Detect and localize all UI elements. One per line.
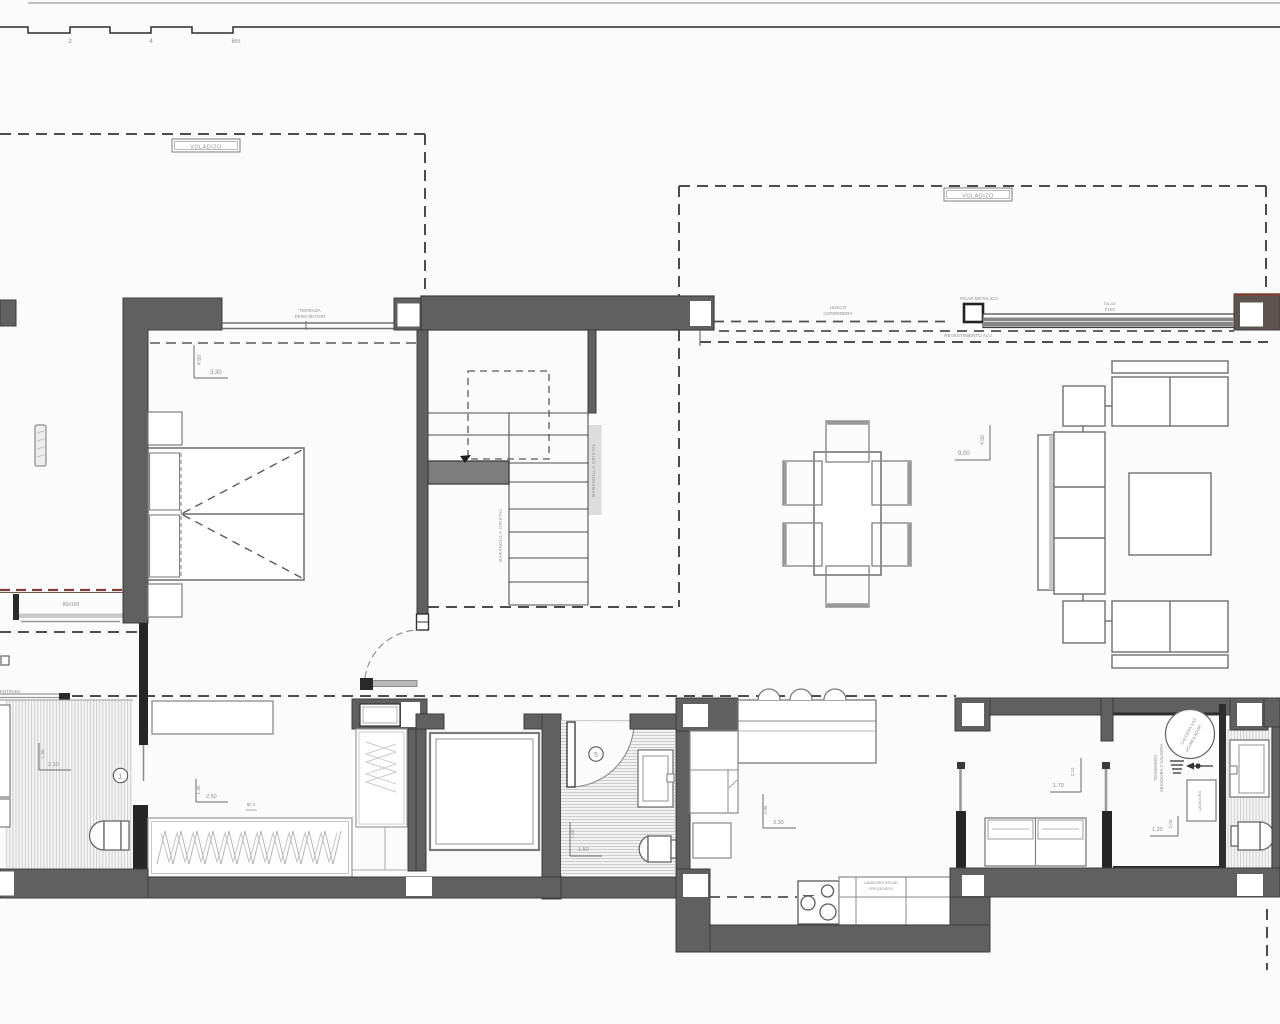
- svg-text:2.50: 2.50: [206, 794, 217, 800]
- svg-text:FIJO: FIJO: [1105, 307, 1115, 312]
- svg-text:2: 2: [68, 38, 72, 45]
- svg-text:FREGADERO: FREGADERO: [869, 887, 893, 891]
- svg-text:1.70: 1.70: [1053, 783, 1064, 789]
- svg-text:TENDEDERO: TENDEDERO: [1153, 754, 1158, 781]
- svg-text:REVESTIMIENTO ALU: REVESTIMIENTO ALU: [944, 333, 991, 338]
- svg-text:hu.co: hu.co: [1104, 301, 1116, 306]
- svg-text:1.90: 1.90: [40, 749, 45, 758]
- svg-text:HUECO: HUECO: [830, 305, 847, 310]
- svg-text:3.30: 3.30: [210, 370, 222, 376]
- svg-text:PERS MOTOR: PERS MOTOR: [295, 314, 326, 319]
- svg-text:2.90: 2.90: [763, 805, 768, 814]
- svg-text:VOLADIZO: VOLADIZO: [962, 194, 994, 200]
- svg-text:80x100: 80x100: [63, 602, 80, 608]
- svg-text:1.50: 1.50: [570, 829, 575, 838]
- svg-text:LAVADORA: LAVADORA: [1198, 790, 1202, 811]
- svg-text:2.00: 2.00: [1168, 819, 1173, 828]
- svg-text:4.50: 4.50: [197, 355, 203, 365]
- svg-text:9.00: 9.00: [958, 451, 970, 457]
- svg-text:4: 4: [149, 38, 153, 45]
- svg-text:PILAR METALICO: PILAR METALICO: [960, 296, 998, 301]
- svg-text:CORREDERA: CORREDERA: [823, 311, 853, 316]
- svg-text:TERRAZA: TERRAZA: [299, 308, 321, 313]
- svg-text:1.90: 1.90: [196, 785, 201, 794]
- svg-text:LAVADORA SECAD: LAVADORA SECAD: [864, 881, 898, 885]
- svg-text:BARANDILLA CRISTAL: BARANDILLA CRISTAL: [591, 443, 596, 497]
- svg-text:5: 5: [594, 752, 598, 759]
- svg-text:SECADORA Y CALDERA: SECADORA Y CALDERA: [1159, 744, 1164, 792]
- svg-text:6m: 6m: [231, 38, 240, 45]
- svg-text:BARANDILLA CRISTAL: BARANDILLA CRISTAL: [498, 508, 503, 562]
- svg-text:VOLADIZO: VOLADIZO: [190, 145, 222, 151]
- svg-text:2.10: 2.10: [1070, 767, 1075, 776]
- svg-text:1.20: 1.20: [1152, 827, 1163, 833]
- svg-text:4.50: 4.50: [980, 435, 986, 445]
- svg-text:1.50: 1.50: [578, 847, 589, 853]
- svg-text:ENTRADA: ENTRADA: [0, 689, 21, 694]
- svg-text:2.10: 2.10: [48, 762, 59, 768]
- svg-text:1: 1: [119, 774, 123, 781]
- svg-text:60 2: 60 2: [247, 802, 256, 807]
- svg-text:3.30: 3.30: [773, 820, 784, 826]
